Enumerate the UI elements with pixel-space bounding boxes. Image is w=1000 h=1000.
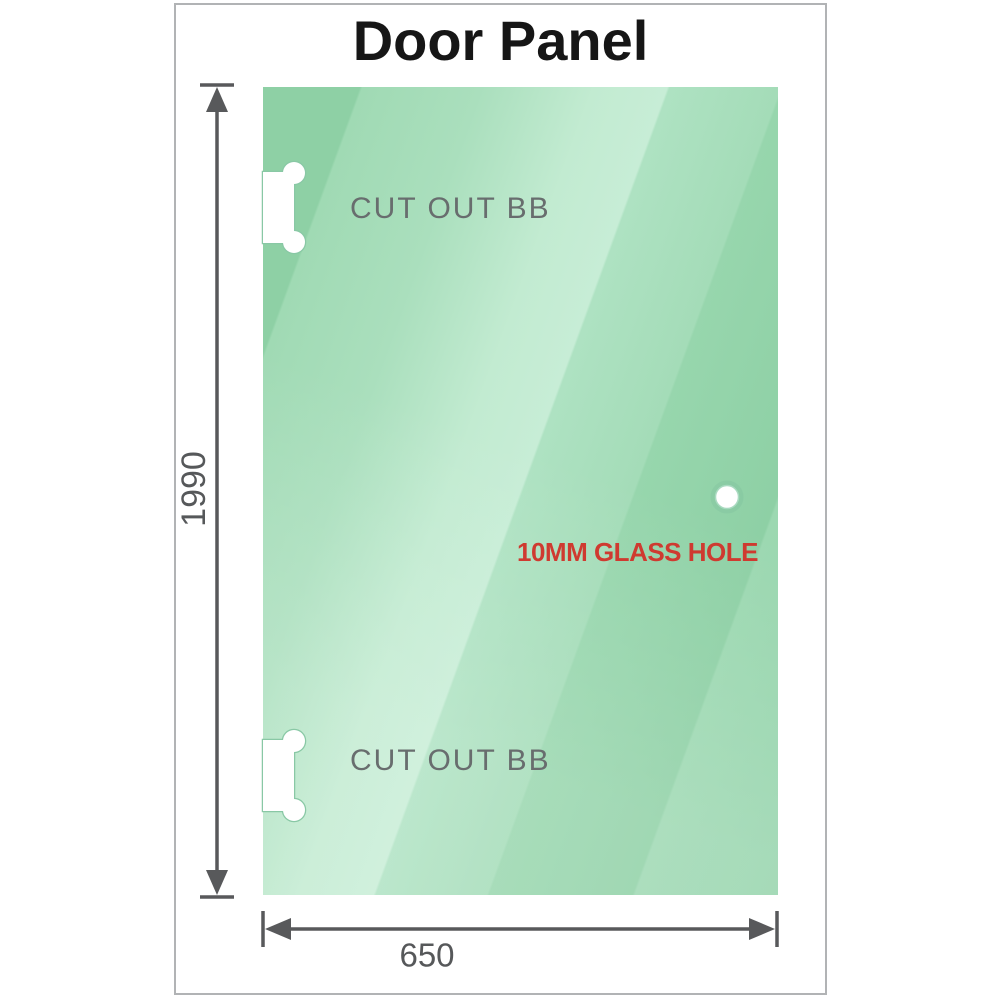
width-dimension-label: 650 xyxy=(399,939,454,972)
height-dimension-label: 1990 xyxy=(177,451,211,527)
cutout-label-bottom: CUT OUT BB xyxy=(350,746,551,776)
arrowhead-left-icon xyxy=(265,918,291,940)
glass-hole-label: 10MM GLASS HOLE xyxy=(517,539,758,565)
hinge-cutout-top xyxy=(263,162,305,253)
arrowhead-up-icon xyxy=(206,87,228,112)
width-dimension-line xyxy=(263,911,777,947)
cutout-label-top: CUT OUT BB xyxy=(350,194,551,224)
glass-hole xyxy=(713,483,741,511)
diagram-graphics xyxy=(0,0,1000,1000)
hinge-cutout-bottom xyxy=(263,730,305,821)
diagram-page: Door Panel xyxy=(0,0,1000,1000)
arrowhead-right-icon xyxy=(749,918,775,940)
arrowhead-down-icon xyxy=(206,870,228,895)
